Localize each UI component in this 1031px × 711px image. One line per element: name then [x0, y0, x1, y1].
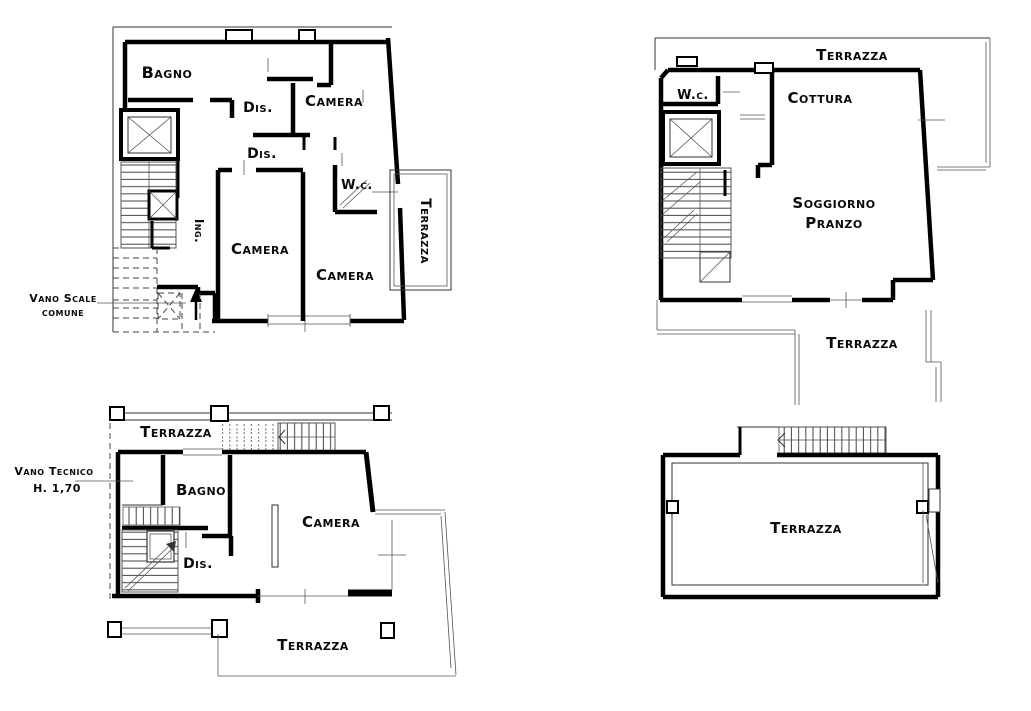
annotation-vano-tecnico-h: H. 1,70	[33, 482, 81, 495]
wall-notch	[929, 489, 940, 512]
elevator-icon	[663, 112, 719, 164]
room-label-wc: W.c.	[677, 88, 709, 103]
annotation-vano-tecnico: Vano Tecnico	[14, 465, 93, 478]
under-stair-hatch	[123, 507, 180, 525]
railing-post	[667, 501, 678, 513]
pillar	[211, 406, 228, 421]
room-label-ing: Ing.	[192, 219, 206, 243]
room-label-camera: Camera	[302, 513, 360, 531]
elevator-icon	[121, 110, 178, 159]
room-label-terrazza-est: Terrazza	[417, 198, 433, 264]
pillar	[755, 63, 773, 73]
room-label-camera-1: Camera	[305, 92, 363, 110]
room-label-dis-1: Dis.	[243, 100, 273, 116]
floor-plan-drawing: Bagno Dis. Camera Dis. W.c. Camera Camer…	[0, 0, 1031, 711]
room-label-terrazza-nord: Terrazza	[140, 423, 212, 441]
room-label-terrazza-sud: Terrazza	[277, 636, 349, 654]
room-label-soggiorno: Soggiorno	[792, 194, 875, 212]
annotation-vano-scale-comune: comune	[42, 306, 84, 319]
room-label-terrazza: Terrazza	[770, 519, 842, 537]
room-label-terrazza-sud: Terrazza	[826, 334, 898, 352]
plan-second-floor: Terrazza W.c. Cottura Soggiorno Pranzo T…	[655, 38, 990, 405]
room-label-dis: Dis.	[183, 556, 213, 572]
room-label-dis-2: Dis.	[247, 146, 277, 162]
terrace-staircase-icon	[220, 423, 335, 451]
floor-plan-sheet: Bagno Dis. Camera Dis. W.c. Camera Camer…	[0, 0, 1031, 711]
room-label-wc: W.c.	[341, 178, 373, 193]
pillar	[226, 30, 252, 41]
plan-third-floor: Terrazza Vano Tecnico H. 1,70 Bagno Dis.…	[14, 406, 456, 676]
room-label-camera-2: Camera	[231, 240, 289, 258]
wardrobe	[272, 505, 278, 567]
roof-staircase-icon	[737, 427, 886, 453]
plan-roof-terrace: Terrazza	[663, 427, 940, 597]
room-label-pranzo: Pranzo	[805, 214, 863, 232]
annotation-vano-scale: Vano Scale	[29, 292, 97, 305]
pillar	[299, 30, 315, 41]
room-label-camera-3: Camera	[316, 266, 374, 284]
room-label-cottura: Cottura	[787, 89, 852, 107]
room-label-terrazza-nord: Terrazza	[816, 46, 888, 64]
plan-first-floor: Bagno Dis. Camera Dis. W.c. Camera Camer…	[29, 27, 451, 332]
railing-post	[917, 501, 928, 513]
pillar	[110, 407, 124, 420]
room-label-bagno: Bagno	[142, 63, 193, 82]
staircase-icon	[661, 168, 731, 282]
room-label-bagno: Bagno	[176, 481, 226, 499]
pillar	[374, 406, 389, 420]
staircase-icon	[122, 530, 178, 592]
staircase-icon	[121, 162, 177, 248]
pillar	[677, 57, 697, 66]
